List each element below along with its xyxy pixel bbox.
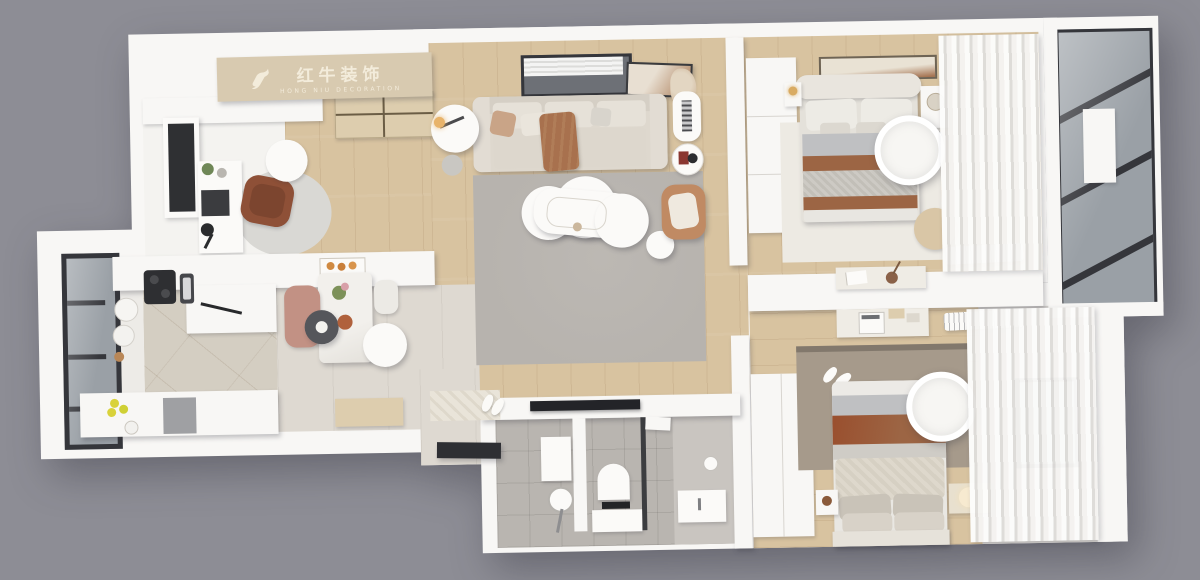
mini-keyboard <box>907 313 920 322</box>
wardrobe-seam <box>781 374 785 537</box>
pendant-lamp-center <box>316 321 328 333</box>
laundry-sink-counter <box>678 490 727 523</box>
desk-tray <box>888 308 904 318</box>
throw-blanket <box>539 111 580 172</box>
wall-tv <box>530 399 640 411</box>
fruit <box>348 261 356 269</box>
bedroom2-desk <box>836 308 928 338</box>
pillow-gray <box>590 107 612 127</box>
sink-faucet <box>698 498 701 510</box>
lemon <box>110 399 119 408</box>
desk-monitor <box>201 190 229 217</box>
burner <box>161 289 170 298</box>
balcony-ac-box <box>1083 109 1116 184</box>
laptop-screen-edge <box>862 315 880 319</box>
nightstand-lamp-gold <box>788 86 797 95</box>
kitchen-sink <box>180 273 195 303</box>
bed2-headboard <box>832 530 949 547</box>
pillow-tan <box>489 110 517 138</box>
sofa-seat-cushion <box>571 127 647 167</box>
apartment-plan: 红牛装饰 HONG NIU DECORATION <box>33 16 1167 562</box>
entry-door <box>437 442 501 459</box>
vanity-mirror-arch <box>597 464 630 501</box>
logo-beam: 红牛装饰 HONG NIU DECORATION <box>217 52 433 101</box>
burner <box>150 275 159 284</box>
vanity-faucet-bar <box>602 501 630 509</box>
study-tv-screen <box>168 123 196 211</box>
open-book <box>845 270 867 285</box>
wall-bathroom-pillar <box>572 418 587 531</box>
wardrobe-seam <box>747 115 797 117</box>
table-cup <box>573 222 582 231</box>
laptop <box>858 312 884 334</box>
apartment: 红牛装饰 HONG NIU DECORATION <box>0 0 1200 580</box>
master-desk <box>836 266 926 290</box>
study-chair-seat <box>248 182 287 220</box>
master-curtains <box>938 34 1042 272</box>
master-headboard <box>795 73 921 99</box>
dining-chair-white <box>374 280 399 314</box>
built-in-appliance <box>163 397 197 434</box>
bedroom2-curtains <box>966 307 1098 542</box>
armchair <box>661 184 706 240</box>
fruit <box>337 263 345 271</box>
lemon <box>107 408 116 417</box>
lemon <box>119 405 128 414</box>
wall-bedroom2-right <box>1093 304 1127 542</box>
bathroom-door-leaf <box>645 416 671 430</box>
living-window-blinds <box>524 57 623 77</box>
floorplan-render: 红牛装饰 HONG NIU DECORATION <box>0 0 1200 580</box>
brand-logo: 红牛装饰 HONG NIU DECORATION <box>217 52 433 101</box>
fruit <box>326 262 334 270</box>
record-decor <box>688 153 698 163</box>
armchair-cushion <box>667 191 700 230</box>
fan-grill <box>682 100 693 131</box>
bull-logo-icon <box>247 65 274 92</box>
shower-mirror-shelf <box>541 437 572 482</box>
master-bed-foot <box>804 208 918 222</box>
living-window <box>521 53 633 97</box>
vanity-counter <box>592 509 642 532</box>
entry-bench <box>335 398 404 427</box>
tower-fan <box>672 91 701 142</box>
sofa-arm <box>649 94 667 169</box>
brand-name-cn: 红牛装饰 <box>296 59 385 86</box>
study-tv-panel <box>163 117 201 218</box>
cooktop <box>144 270 177 305</box>
sink-basin <box>183 278 191 300</box>
